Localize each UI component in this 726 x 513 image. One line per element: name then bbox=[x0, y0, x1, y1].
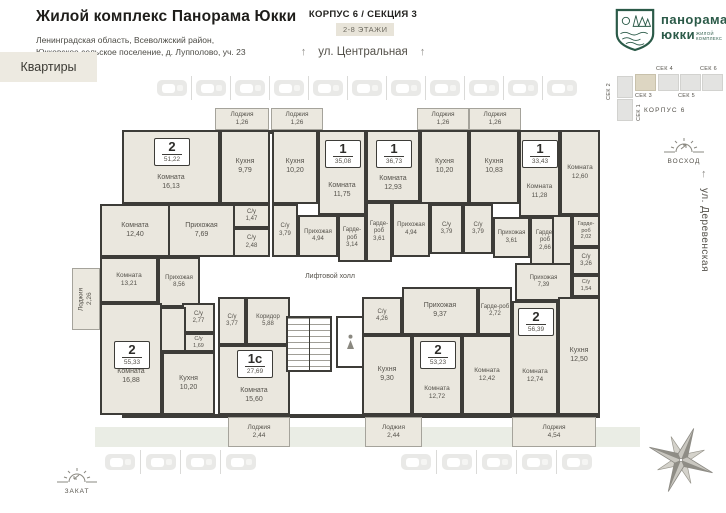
apartment-type: 2 bbox=[155, 139, 189, 154]
car-icon bbox=[226, 454, 256, 470]
room: Комната12,60 bbox=[560, 130, 600, 215]
room: С/у2,77 bbox=[182, 303, 215, 333]
apartment-type: 2 bbox=[115, 342, 149, 357]
apartment-type: 2 bbox=[519, 309, 553, 324]
room: Прихожая4,94 bbox=[298, 215, 338, 257]
room: Кухня12,50 bbox=[558, 297, 600, 415]
room-name: Прихожая bbox=[165, 275, 193, 283]
room-name: С/у bbox=[247, 209, 256, 217]
room: С/у3,79 bbox=[272, 204, 298, 257]
apartment-badge[interactable]: 256,39 bbox=[518, 308, 554, 336]
room-name: Комната bbox=[328, 182, 355, 191]
parking-slot bbox=[516, 450, 556, 474]
loggia-area: 2,44 bbox=[253, 432, 266, 440]
room: Кухня10,20 bbox=[420, 130, 469, 204]
room-area: 3,61 bbox=[373, 236, 385, 244]
parking-slot bbox=[191, 76, 230, 100]
room-area: 9,37 bbox=[433, 311, 447, 320]
parking-slot bbox=[100, 450, 140, 474]
parking-slot bbox=[230, 76, 269, 100]
apartment-area: 53,23 bbox=[421, 358, 455, 368]
car-icon bbox=[274, 80, 304, 96]
loggia-area: 2,44 bbox=[387, 432, 400, 440]
apartment-badge[interactable]: 255,33 bbox=[114, 341, 150, 369]
room-name: С/у bbox=[247, 235, 256, 243]
room: Комната13,21 bbox=[100, 257, 158, 303]
apartment-badge[interactable]: 1с27,69 bbox=[237, 350, 273, 378]
room-name: Прихожая bbox=[397, 222, 425, 230]
car-icon bbox=[482, 454, 512, 470]
room-area: 3,79 bbox=[279, 231, 291, 239]
room-area: 9,79 bbox=[238, 167, 252, 176]
room-area: 9,30 bbox=[380, 375, 394, 384]
room-name: С/у bbox=[582, 254, 591, 262]
room-area: 3,26 bbox=[580, 261, 592, 269]
loggia-name: Лоджия bbox=[542, 424, 565, 432]
apartment-badge[interactable]: 135,08 bbox=[325, 140, 361, 168]
room: Прихожая7,69 bbox=[168, 204, 235, 257]
room: Прихожая8,56 bbox=[158, 257, 200, 307]
loggia-name: Лоджия bbox=[230, 111, 253, 119]
apartment-type: 2 bbox=[421, 342, 455, 357]
room-name: Гарде-роб bbox=[574, 221, 598, 235]
room-name: С/у bbox=[194, 311, 203, 319]
room-area: 1,47 bbox=[246, 216, 258, 224]
lift-hall-label: Лифтовой холл bbox=[302, 272, 358, 281]
loggia: Лоджия1,26 bbox=[271, 108, 323, 130]
room-name: Кухня bbox=[485, 158, 504, 167]
loggia: Лоджия1,26 bbox=[417, 108, 469, 130]
room-name: Кухня bbox=[286, 158, 305, 167]
room-name: Комната bbox=[379, 175, 406, 184]
apartment-area: 51,22 bbox=[155, 155, 189, 165]
room: С/у2,48 bbox=[233, 228, 270, 257]
room: Гарде-роб3,14 bbox=[338, 215, 366, 262]
parking-slot bbox=[503, 76, 542, 100]
car-icon bbox=[146, 454, 176, 470]
room-area: 11,75 bbox=[334, 191, 351, 200]
room: Гарде-роб2,72 bbox=[478, 287, 512, 335]
room-name: Комната bbox=[157, 174, 184, 183]
room-area: 10,20 bbox=[180, 384, 198, 393]
loggia-name: Лоджия bbox=[285, 111, 308, 119]
room-area: 12,60 bbox=[572, 173, 588, 181]
room-area: 2,77 bbox=[193, 318, 205, 326]
loggia-area: 1,26 bbox=[236, 119, 249, 127]
room-area: 3,61 bbox=[506, 238, 518, 246]
loggia-name: Лоджия bbox=[247, 424, 270, 432]
car-icon bbox=[430, 80, 460, 96]
room-area: 7,39 bbox=[538, 282, 550, 290]
room-area: 4,94 bbox=[312, 236, 324, 244]
car-icon bbox=[235, 80, 265, 96]
room: Прихожая3,61 bbox=[493, 217, 530, 258]
room-name: Кухня bbox=[378, 366, 397, 375]
car-icon bbox=[442, 454, 472, 470]
room: С/у3,79 bbox=[463, 204, 493, 254]
loggia-area: 2,26 bbox=[86, 293, 94, 306]
room-area: 15,60 bbox=[245, 396, 263, 405]
room: Прихожая7,39 bbox=[515, 263, 572, 301]
parking-slot bbox=[140, 450, 180, 474]
room-area: 4,26 bbox=[376, 316, 388, 324]
room-name: Комната bbox=[567, 164, 592, 172]
parking-slot bbox=[436, 450, 476, 474]
apartment-area: 55,33 bbox=[115, 358, 149, 368]
car-icon bbox=[313, 80, 343, 96]
room: Кухня10,20 bbox=[272, 130, 318, 204]
room-name: Комната bbox=[240, 387, 267, 396]
room-area: 2,66 bbox=[539, 245, 551, 253]
car-icon bbox=[391, 80, 421, 96]
room-area: 2,02 bbox=[581, 234, 592, 241]
room-area: 2,72 bbox=[489, 311, 501, 319]
room-area: 10,83 bbox=[485, 167, 503, 176]
room-name: Комната bbox=[116, 272, 141, 280]
room: С/у4,26 bbox=[362, 297, 402, 335]
room-area: 16,88 bbox=[122, 377, 140, 386]
apartment-badge[interactable]: 133,43 bbox=[522, 140, 558, 168]
car-icon bbox=[547, 80, 577, 96]
person-icon bbox=[346, 334, 355, 350]
room-name: Комната bbox=[121, 222, 148, 231]
room-area: 3,77 bbox=[226, 321, 238, 329]
parking-row bbox=[396, 450, 596, 474]
apartment-area: 27,69 bbox=[238, 367, 272, 377]
parking-slot bbox=[542, 76, 581, 100]
room-area: 8,56 bbox=[173, 282, 185, 290]
room-name: С/у bbox=[194, 336, 202, 343]
parking-slot bbox=[220, 450, 260, 474]
loggia: Лоджия1,26 bbox=[215, 108, 269, 130]
car-icon bbox=[562, 454, 592, 470]
room: Комната12,40 bbox=[100, 204, 170, 257]
loggia-area: 4,54 bbox=[548, 432, 561, 440]
room-area: 13,21 bbox=[121, 280, 137, 288]
room: Кухня10,83 bbox=[469, 130, 519, 204]
room-area: 11,28 bbox=[532, 192, 548, 200]
room-name: Прихожая bbox=[304, 229, 332, 237]
parking-slot bbox=[180, 450, 220, 474]
apartment-area: 33,43 bbox=[523, 157, 557, 167]
car-icon bbox=[186, 454, 216, 470]
apartment-type: 1с bbox=[238, 351, 272, 366]
room-area: 12,42 bbox=[479, 375, 495, 383]
car-icon bbox=[157, 80, 187, 96]
room-area: 7,69 bbox=[195, 231, 209, 240]
room-area: 4,94 bbox=[405, 230, 417, 238]
room: Коридор5,88 bbox=[246, 297, 290, 345]
loggia-name: Лоджия bbox=[382, 424, 405, 432]
apartment-area: 36,73 bbox=[377, 157, 411, 167]
room: Гарде-роб2,02 bbox=[572, 215, 600, 247]
room: С/у1,47 bbox=[233, 204, 270, 228]
loggia-area: 1,26 bbox=[489, 119, 502, 127]
room-name: С/у bbox=[228, 314, 237, 322]
parking-row bbox=[100, 450, 260, 474]
room-area: 3,79 bbox=[472, 229, 484, 237]
room-name: Кухня bbox=[570, 347, 589, 356]
parking-row bbox=[152, 76, 581, 100]
room-name: Комната bbox=[527, 183, 552, 191]
room-area: 12,40 bbox=[126, 231, 144, 240]
parking-slot bbox=[269, 76, 308, 100]
room-name: Кухня bbox=[435, 158, 454, 167]
room-name: Прихожая bbox=[498, 230, 526, 238]
room: Прихожая4,94 bbox=[392, 202, 430, 257]
room-name: Прихожая bbox=[424, 302, 456, 311]
apartment-badge[interactable]: 251,22 bbox=[154, 138, 190, 166]
room-name: Кухня bbox=[236, 158, 255, 167]
room: С/у3,77 bbox=[218, 297, 246, 345]
room-area: 1,69 bbox=[193, 343, 204, 350]
room-area: 12,74 bbox=[527, 376, 543, 384]
room: С/у1,69 bbox=[182, 333, 215, 352]
room-name: Комната bbox=[117, 368, 144, 377]
apartment-type: 1 bbox=[377, 141, 411, 156]
loggia: Лоджия1,26 bbox=[469, 108, 521, 130]
loggia-area: 1,26 bbox=[291, 119, 304, 127]
room-name: Прихожая bbox=[185, 222, 217, 231]
room-area: 10,20 bbox=[286, 167, 304, 176]
loggia-name: Лоджия bbox=[78, 287, 86, 310]
room-name: С/у bbox=[442, 222, 451, 230]
room-name: Гарде-роб bbox=[340, 227, 364, 242]
room-filler bbox=[552, 215, 572, 265]
car-icon bbox=[196, 80, 226, 96]
room-name: Прихожая bbox=[530, 275, 558, 283]
room-name: Коридор bbox=[256, 314, 280, 322]
apartment-area: 35,08 bbox=[326, 157, 360, 167]
room-name: С/у bbox=[474, 222, 483, 230]
room-area: 1,54 bbox=[581, 286, 592, 293]
parking-slot bbox=[464, 76, 503, 100]
room-area: 12,93 bbox=[384, 184, 402, 193]
loggia: Лоджия2,26 bbox=[72, 268, 100, 330]
room-name: Гарде-роб bbox=[368, 221, 390, 236]
car-icon bbox=[508, 80, 538, 96]
room-name: Комната bbox=[424, 385, 449, 393]
room-name: С/у bbox=[281, 223, 290, 231]
room: Комната12,42 bbox=[462, 335, 512, 415]
room-name: С/у bbox=[582, 279, 590, 286]
room-name: С/у bbox=[378, 309, 387, 317]
room-area: 2,48 bbox=[246, 243, 258, 251]
loggia-name: Лоджия bbox=[431, 111, 454, 119]
apartment-area: 56,39 bbox=[519, 325, 553, 335]
parking-slot bbox=[386, 76, 425, 100]
loggia-name: Лоджия bbox=[483, 111, 506, 119]
room-area: 12,72 bbox=[429, 393, 445, 401]
room-area: 12,50 bbox=[570, 356, 588, 365]
car-icon bbox=[105, 454, 135, 470]
staircase bbox=[286, 316, 332, 372]
room-area: 3,14 bbox=[346, 242, 358, 250]
apartment-type: 1 bbox=[523, 141, 557, 156]
room-filler bbox=[158, 307, 186, 352]
car-icon bbox=[352, 80, 382, 96]
loggia-area: 1,26 bbox=[437, 119, 450, 127]
room-name: Гарде-роб bbox=[481, 304, 509, 312]
loggia: Лоджия2,44 bbox=[228, 417, 290, 447]
room: Кухня10,20 bbox=[162, 352, 215, 415]
room-name: Комната bbox=[474, 367, 499, 375]
room-area: 16,13 bbox=[162, 183, 180, 192]
parking-slot bbox=[152, 76, 191, 100]
apartment-type: 1 bbox=[326, 141, 360, 156]
room-name: Комната bbox=[522, 368, 547, 376]
parking-slot bbox=[425, 76, 464, 100]
apartment-badge[interactable]: 253,23 bbox=[420, 341, 456, 369]
room: С/у3,26 bbox=[572, 247, 600, 275]
loggia: Лоджия4,54 bbox=[512, 417, 596, 447]
room: Гарде-роб3,61 bbox=[366, 202, 392, 262]
apartment-badge[interactable]: 136,73 bbox=[376, 140, 412, 168]
room-area: 3,79 bbox=[441, 229, 453, 237]
elevator bbox=[336, 316, 364, 368]
car-icon bbox=[469, 80, 499, 96]
parking-slot bbox=[396, 450, 436, 474]
room: Кухня9,30 bbox=[362, 335, 412, 415]
room: Кухня9,79 bbox=[220, 130, 270, 204]
parking-slot bbox=[556, 450, 596, 474]
parking-slot bbox=[308, 76, 347, 100]
parking-slot bbox=[347, 76, 386, 100]
parking-slot bbox=[476, 450, 516, 474]
room-name: Кухня bbox=[179, 375, 198, 384]
room: С/у1,54 bbox=[572, 275, 600, 297]
loggia: Лоджия2,44 bbox=[365, 417, 422, 447]
car-icon bbox=[522, 454, 552, 470]
room-area: 10,20 bbox=[436, 167, 454, 176]
room: С/у3,79 bbox=[430, 204, 463, 254]
car-icon bbox=[401, 454, 431, 470]
room-area: 5,88 bbox=[262, 321, 274, 329]
room: Прихожая9,37 bbox=[402, 287, 478, 335]
